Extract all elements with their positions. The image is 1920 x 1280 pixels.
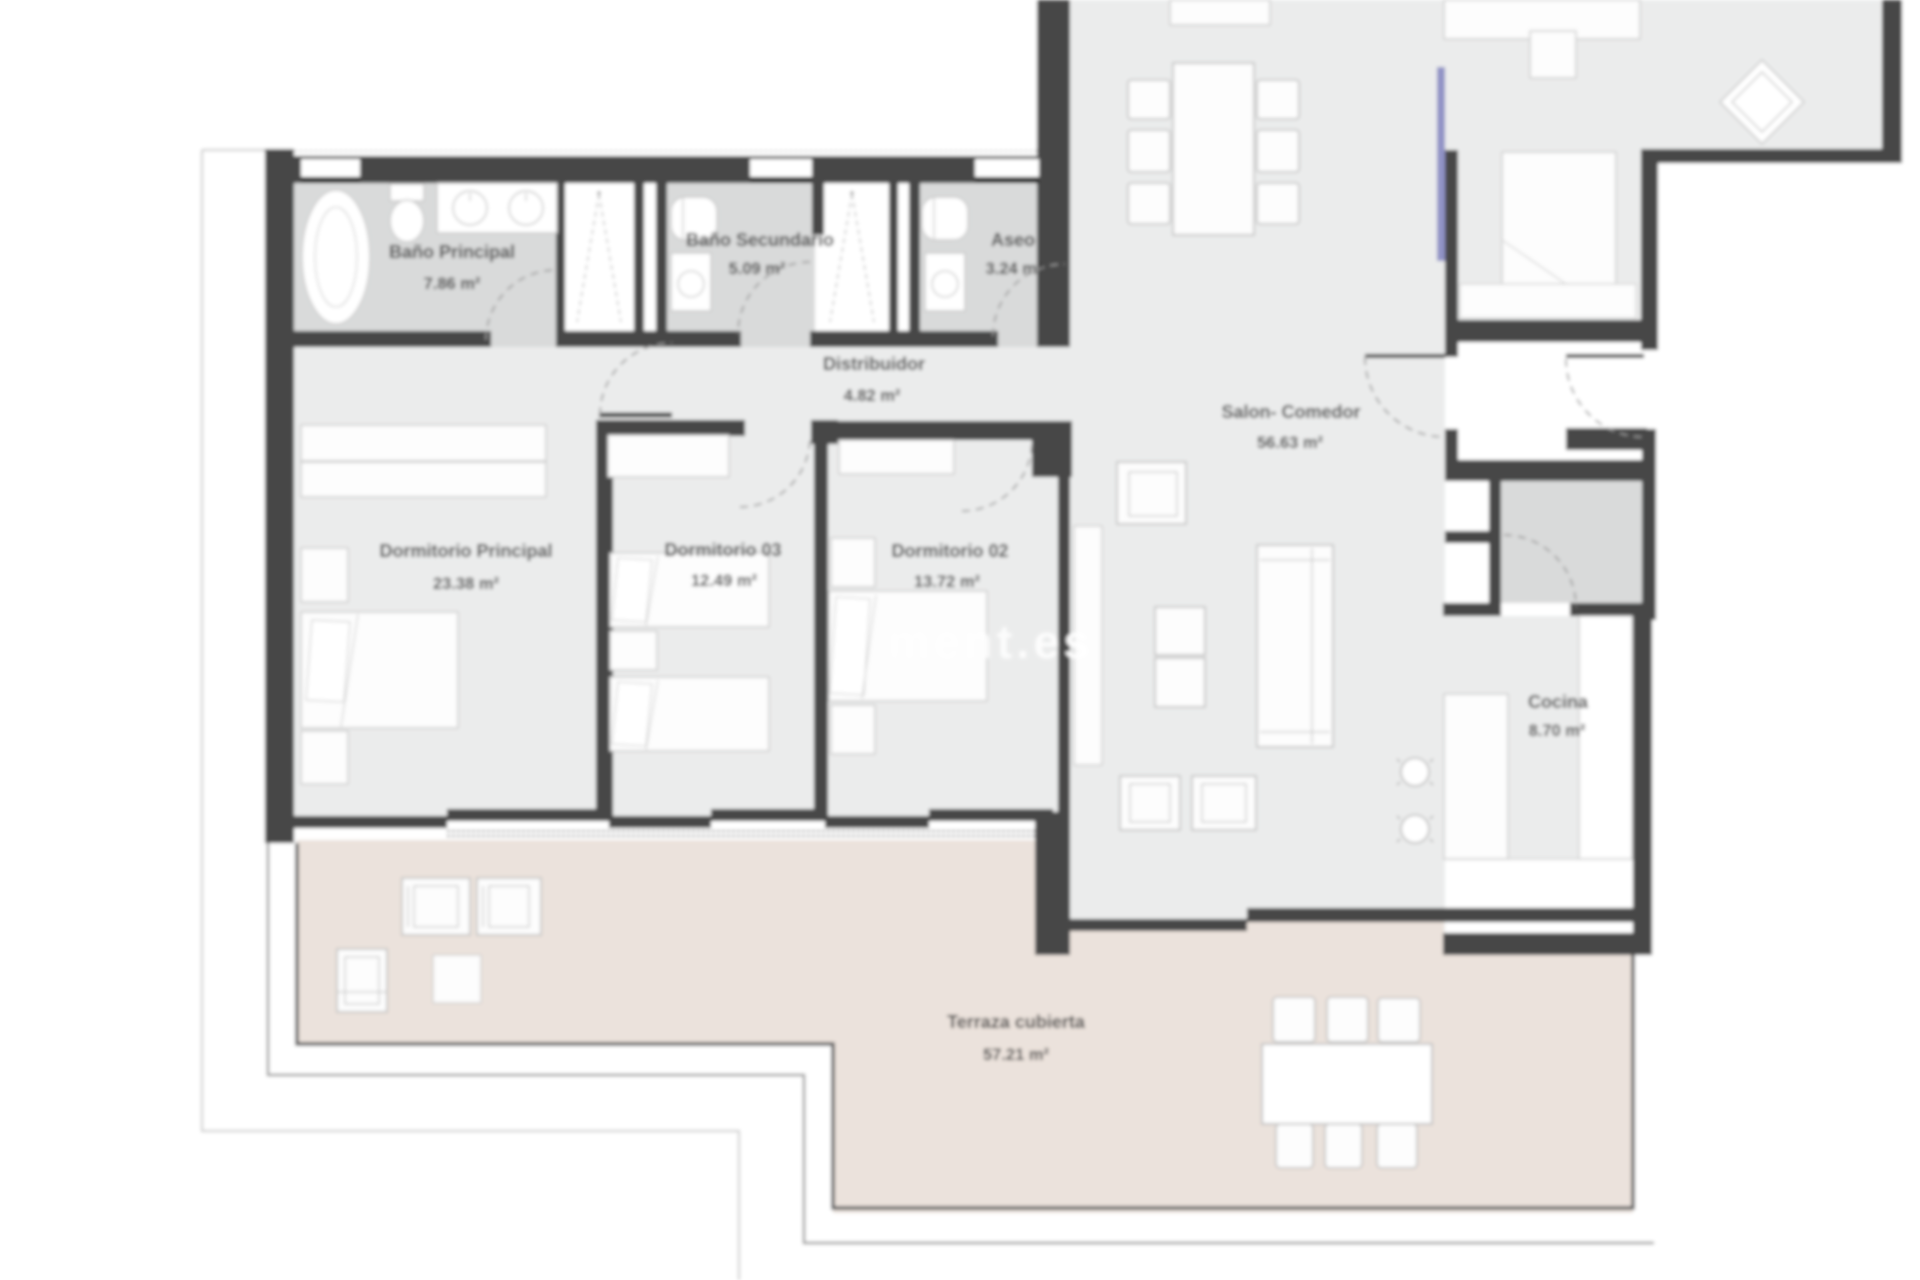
svg-text:12.49 m²: 12.49 m² xyxy=(691,572,758,590)
svg-text:5.09 m²: 5.09 m² xyxy=(729,260,786,278)
svg-text:Dormitorio 03: Dormitorio 03 xyxy=(664,540,781,560)
svg-text:Terraza cubierta: Terraza cubierta xyxy=(947,1012,1086,1032)
svg-text:23.38 m²: 23.38 m² xyxy=(433,575,500,593)
svg-text:Cocina: Cocina xyxy=(1528,692,1589,712)
svg-text:8.70 m²: 8.70 m² xyxy=(1529,722,1586,740)
svg-text:Baño Secundario: Baño Secundario xyxy=(686,230,834,250)
svg-text:Baño Principal: Baño Principal xyxy=(389,242,515,262)
svg-text:7.86 m²: 7.86 m² xyxy=(424,275,481,293)
svg-text:Dormitorio Principal: Dormitorio Principal xyxy=(379,541,552,561)
svg-text:Aseo: Aseo xyxy=(991,230,1035,250)
svg-text:56.63 m²: 56.63 m² xyxy=(1257,434,1324,452)
svg-text:Dormitorio 02: Dormitorio 02 xyxy=(891,541,1008,561)
svg-text:57.21 m²: 57.21 m² xyxy=(983,1046,1050,1064)
svg-text:Salon- Comedor: Salon- Comedor xyxy=(1221,402,1360,422)
svg-text:3.24 m²: 3.24 m² xyxy=(986,260,1043,278)
svg-text:ment.es: ment.es xyxy=(888,615,1094,668)
svg-text:Distribuidor: Distribuidor xyxy=(823,354,925,374)
svg-text:13.72 m²: 13.72 m² xyxy=(914,573,981,591)
svg-text:4.82 m²: 4.82 m² xyxy=(844,387,901,405)
